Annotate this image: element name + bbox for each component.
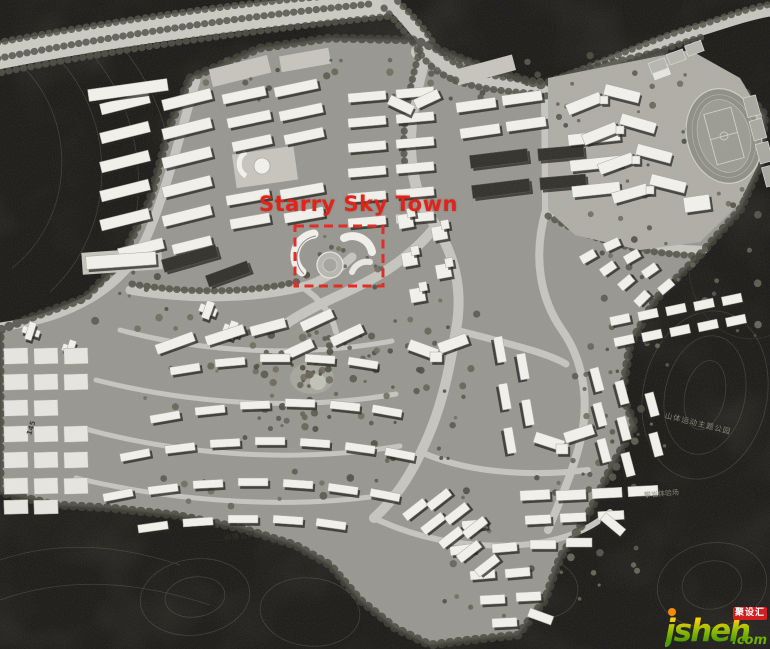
brand-badge: 聚设汇 — [733, 607, 767, 620]
master-plan-screenshot: Starry Sky Town 145 山体公园 山体运动主题公园 攀岩体验场 … — [0, 0, 770, 649]
watermark-logo: jsheh 聚设汇 .com — [665, 603, 767, 647]
brand-dot-icon — [668, 608, 676, 616]
annotation-label: Starry Sky Town — [259, 192, 458, 216]
brand-tld: .com — [732, 634, 767, 647]
paper-grain — [0, 0, 770, 649]
site-plan-canvas — [0, 0, 770, 649]
